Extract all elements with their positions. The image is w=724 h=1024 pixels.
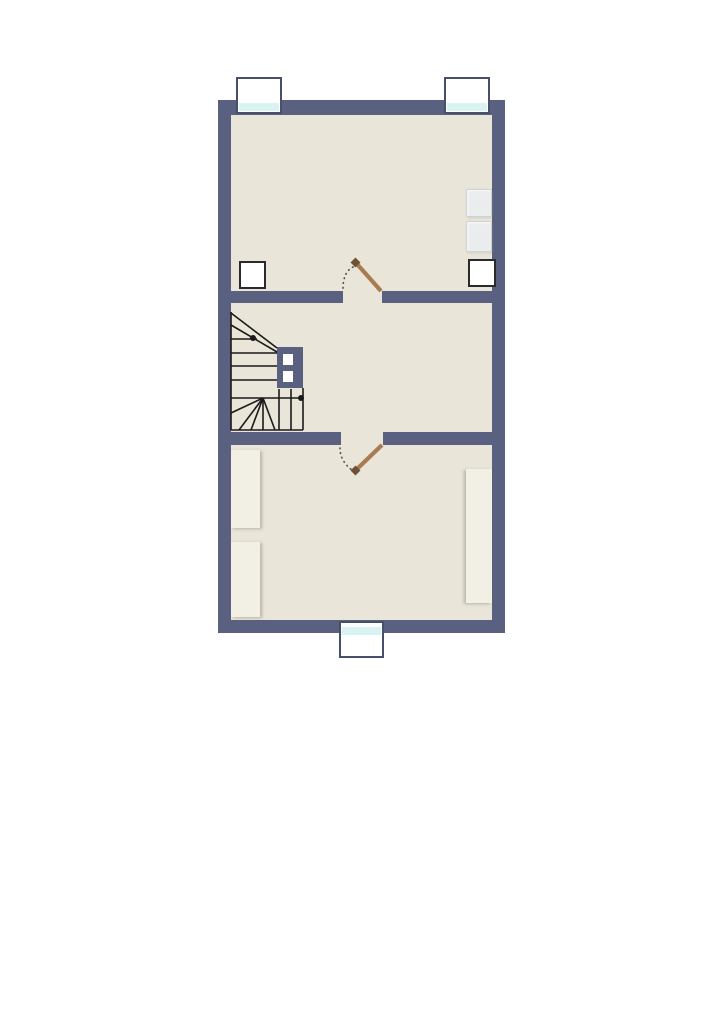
floor-plan bbox=[0, 0, 724, 1024]
room-upper bbox=[231, 115, 492, 291]
window-top-left-glass bbox=[239, 102, 279, 112]
wardrobe-lower-left-2 bbox=[231, 542, 260, 617]
wardrobe-lower-left-1 bbox=[231, 450, 260, 528]
floorplan-canvas bbox=[0, 0, 724, 1024]
box-upper-right bbox=[468, 259, 496, 287]
partition-lower-right bbox=[383, 432, 492, 445]
window-top-left bbox=[236, 77, 282, 114]
chimney-vent-1 bbox=[283, 354, 293, 365]
room-middle-landing bbox=[231, 303, 492, 432]
window-top-right-glass bbox=[447, 102, 487, 112]
box-upper-left bbox=[239, 261, 266, 289]
cabinet-upper-right-1 bbox=[466, 189, 492, 217]
window-bottom-glass bbox=[342, 626, 381, 636]
partition-upper-left bbox=[231, 291, 343, 303]
window-bottom bbox=[339, 621, 384, 658]
partition-upper-right bbox=[382, 291, 492, 303]
room-lower bbox=[231, 445, 492, 620]
partition-lower-left bbox=[231, 432, 341, 445]
cabinet-upper-right-2 bbox=[466, 221, 492, 252]
window-top-right bbox=[444, 77, 490, 114]
chimney-vent-2 bbox=[283, 371, 293, 382]
wardrobe-lower-right bbox=[466, 469, 492, 603]
